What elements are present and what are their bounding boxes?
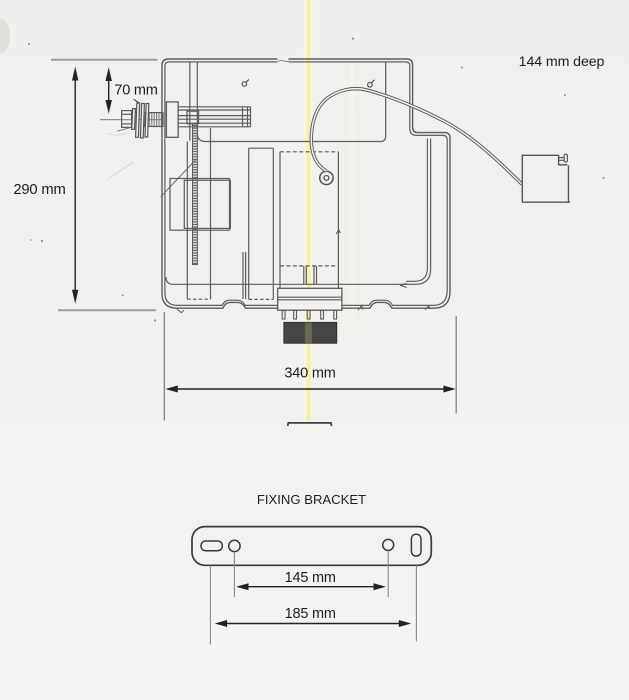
svg-text:FIXING BRACKET: FIXING BRACKET	[257, 492, 366, 507]
svg-text:144 mm deep: 144 mm deep	[519, 54, 605, 70]
svg-text:185 mm: 185 mm	[285, 606, 336, 622]
svg-text:340 mm: 340 mm	[284, 366, 335, 382]
svg-text:70 mm: 70 mm	[114, 83, 157, 99]
svg-text:145 mm: 145 mm	[285, 570, 336, 586]
svg-text:290 mm: 290 mm	[13, 182, 65, 198]
